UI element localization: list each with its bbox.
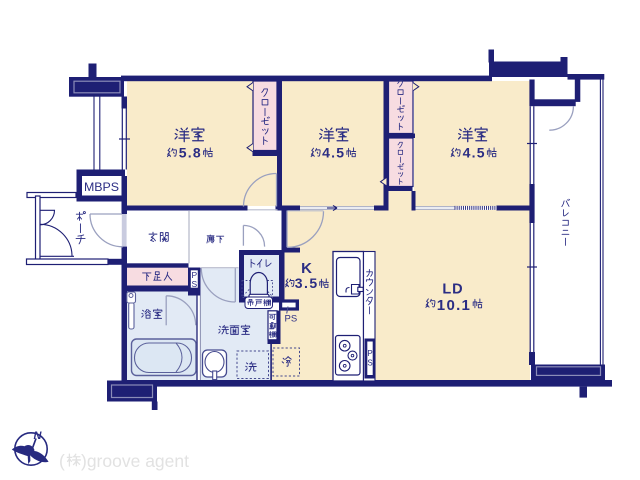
svg-text:3.5: 3.5: [295, 275, 319, 291]
svg-text:S: S: [191, 279, 197, 289]
svg-text:PS: PS: [285, 314, 298, 325]
svg-text:MBPS: MBPS: [84, 180, 119, 194]
svg-text:S: S: [367, 359, 372, 368]
svg-text:(: (: [59, 451, 65, 471]
svg-text:4.5: 4.5: [463, 145, 486, 161]
svg-text:LD: LD: [442, 282, 463, 298]
svg-text:P: P: [367, 349, 372, 358]
svg-text:10.1: 10.1: [437, 297, 471, 314]
svg-text:N: N: [34, 430, 43, 442]
svg-text:4.5: 4.5: [322, 145, 345, 161]
svg-text:)groove agent: )groove agent: [81, 451, 189, 471]
svg-text:5.8: 5.8: [179, 145, 202, 161]
